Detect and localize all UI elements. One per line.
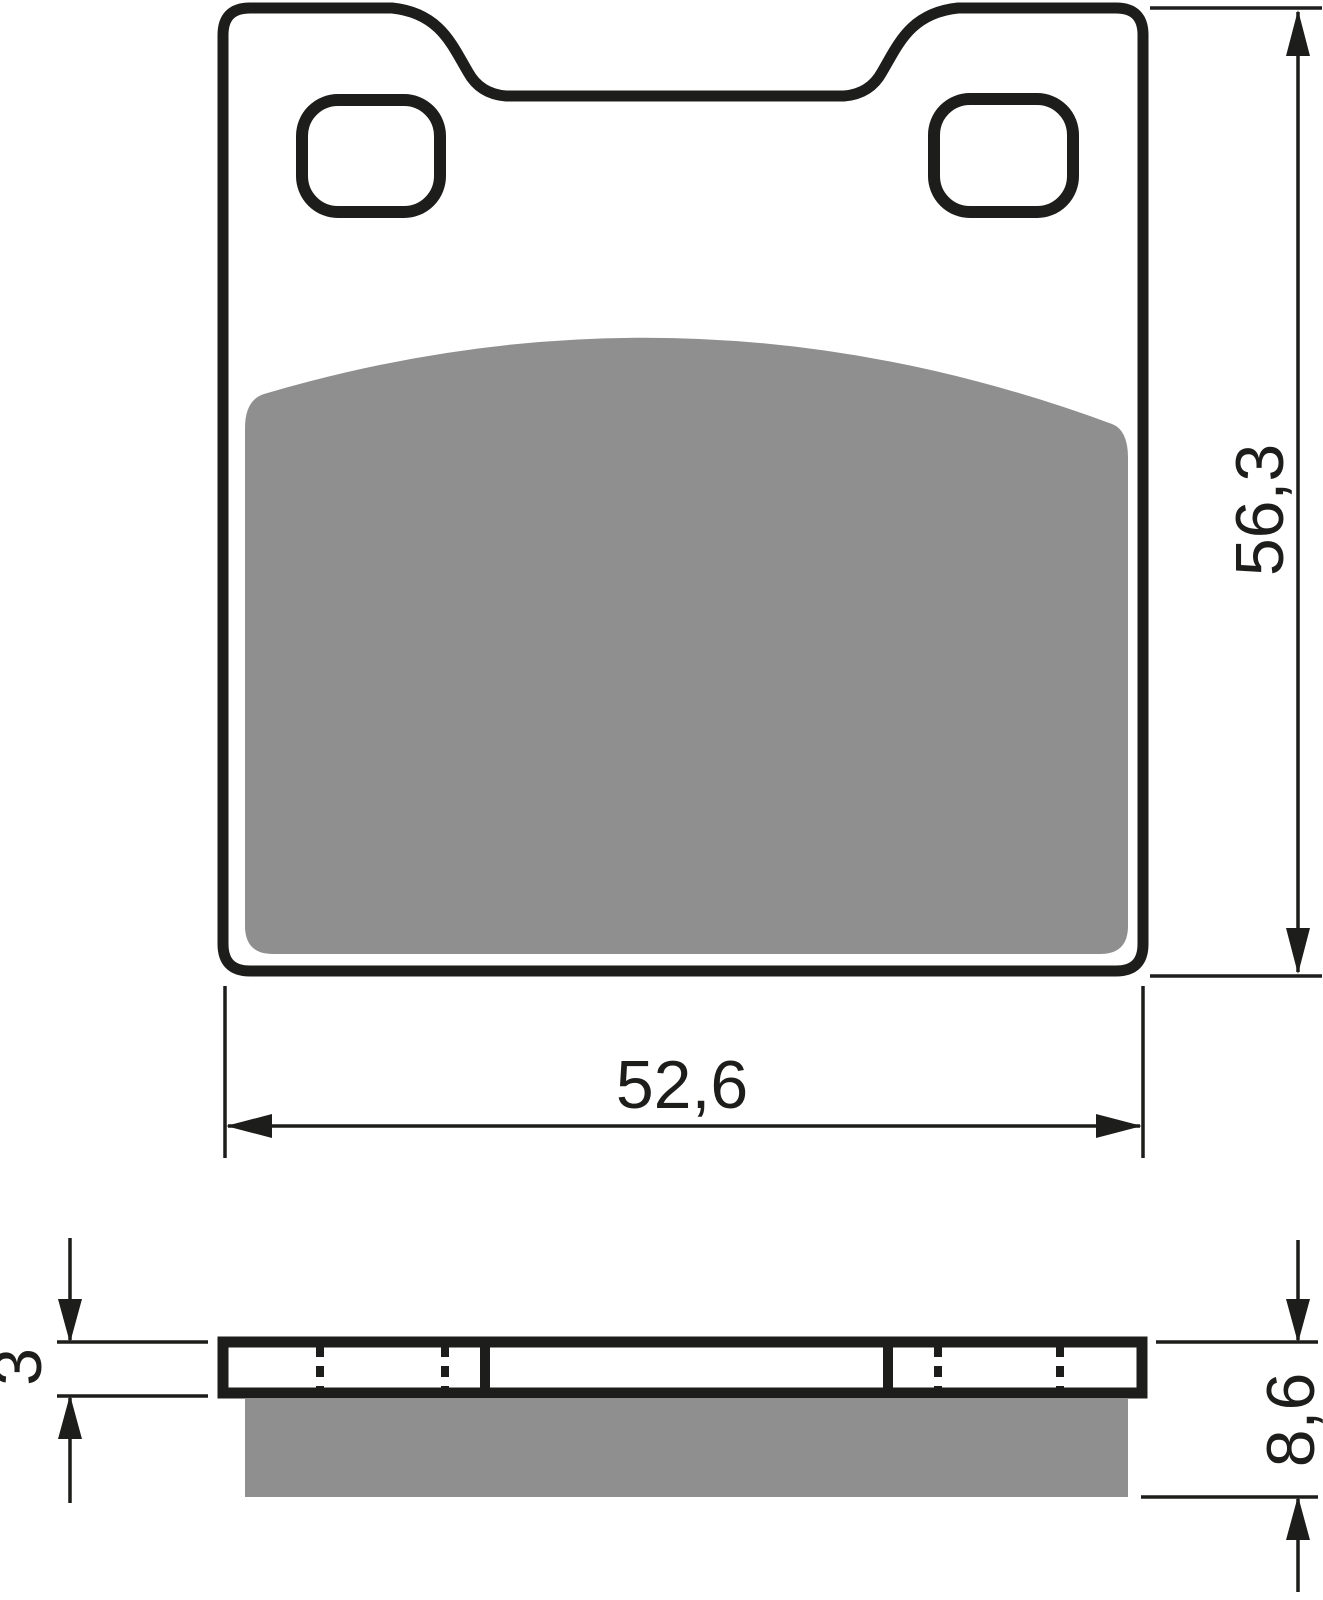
arrowhead-up [1286,10,1310,56]
mounting-hole-right [934,99,1073,212]
dimension-label-plate-thickness: 3 [0,1348,52,1386]
backing-plate-side [223,1342,1142,1393]
dimension-label-height: 56,3 [1226,444,1294,576]
dimension-label-width: 52,6 [616,1051,748,1119]
arrowhead-down [1286,928,1310,974]
dimension-plate-thickness [57,1238,208,1503]
arrowhead-right [1096,1114,1142,1138]
arrowhead-up [58,1395,82,1439]
technical-drawing-page: 52,6 56,3 3 8,6 [0,0,1323,1600]
mounting-hole-left [302,100,440,212]
arrowhead-down [1286,1299,1310,1343]
brake-pad-side-view [223,1342,1142,1497]
arrowhead-down [58,1299,82,1343]
brake-pad-front-view [223,8,1143,971]
arrowhead-up [1286,1496,1310,1540]
brake-pad-drawing [0,0,1323,1600]
arrowhead-left [226,1114,272,1138]
friction-material-side [245,1399,1128,1497]
friction-material-front [245,338,1128,954]
dimension-label-total-thickness: 8,6 [1257,1373,1323,1468]
